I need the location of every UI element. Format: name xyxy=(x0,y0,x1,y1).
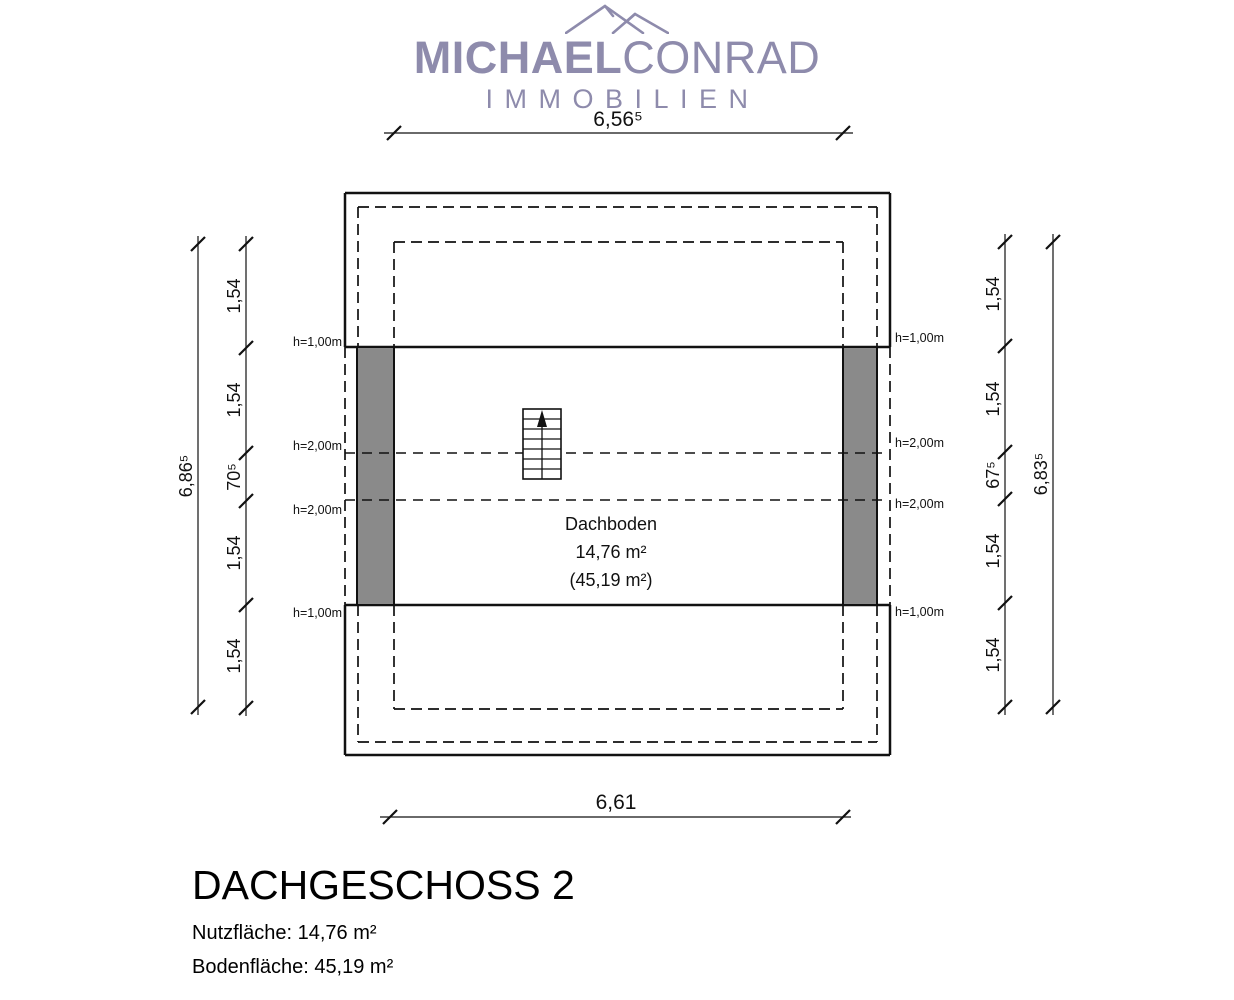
dim-top-value: 6,56⁵ xyxy=(593,108,643,131)
h-label: h=1,00m xyxy=(293,335,342,349)
floor-area-text: Bodenfläche: 45,19 m² xyxy=(192,956,575,979)
floor-title: DACHGESCHOSS 2 xyxy=(192,864,575,907)
wall-right xyxy=(843,347,877,605)
dim-left-seg: 70⁵ xyxy=(224,463,244,490)
usable-area-text: Nutzfläche: 14,76 m² xyxy=(192,922,575,945)
dimension-right-total: 6,83⁵ xyxy=(1031,234,1060,715)
h-label: h=1,00m xyxy=(895,331,944,345)
h-label: h=2,00m xyxy=(293,503,342,517)
dimension-top: 6,56⁵ xyxy=(384,108,853,140)
dim-left-total-value: 6,86⁵ xyxy=(176,455,196,498)
dim-left-seg: 1,54 xyxy=(224,535,244,570)
height-labels-left: h=1,00m h=2,00m h=2,00m h=1,00m xyxy=(293,335,342,620)
dim-right-seg: 67⁵ xyxy=(983,461,1003,488)
dim-right-seg: 1,54 xyxy=(983,637,1003,672)
wall-left xyxy=(357,347,394,605)
dim-right-seg: 1,54 xyxy=(983,533,1003,568)
room-label-group: Dachboden 14,76 m² (45,19 m²) xyxy=(565,514,657,590)
h-label: h=2,00m xyxy=(895,497,944,511)
floor-plan-drawing: Dachboden 14,76 m² (45,19 m²) h=1,00m h=… xyxy=(0,0,1234,1000)
dim-right-seg: 1,54 xyxy=(983,276,1003,311)
dim-right-total-value: 6,83⁵ xyxy=(1031,453,1051,496)
dimension-bottom: 6,61 xyxy=(380,791,851,824)
h2-contour-lines xyxy=(345,453,889,500)
h-label: h=1,00m xyxy=(293,606,342,620)
floor-plan-page: MICHAELCONRAD IMMOBILIEN xyxy=(0,0,1234,1000)
h-label: h=1,00m xyxy=(895,605,944,619)
room-area-usable: 14,76 m² xyxy=(575,542,646,562)
dimension-left-total: 6,86⁵ xyxy=(176,236,205,715)
dim-left-seg: 1,54 xyxy=(224,382,244,417)
h-label: h=2,00m xyxy=(293,439,342,453)
dimension-right-chain: 1,54 1,54 67⁵ 1,54 1,54 xyxy=(983,234,1012,715)
height-contour-inner xyxy=(394,242,843,709)
building-outline xyxy=(345,193,890,755)
dim-left-seg: 1,54 xyxy=(224,278,244,313)
dim-left-seg: 1,54 xyxy=(224,638,244,673)
title-block: DACHGESCHOSS 2 Nutzfläche: 14,76 m² Bode… xyxy=(192,864,575,979)
knee-wall-lines xyxy=(345,347,890,605)
height-labels-right: h=1,00m h=2,00m h=2,00m h=1,00m xyxy=(895,331,944,619)
dimension-left-chain: 1,54 1,54 70⁵ 1,54 1,54 xyxy=(224,236,253,716)
height-contour-outer xyxy=(358,207,877,742)
room-area-floor: (45,19 m²) xyxy=(569,570,652,590)
room-name: Dachboden xyxy=(565,514,657,534)
dim-bottom-value: 6,61 xyxy=(596,791,637,814)
h-label: h=2,00m xyxy=(895,436,944,450)
dim-right-seg: 1,54 xyxy=(983,381,1003,416)
stairs-symbol xyxy=(523,409,561,479)
